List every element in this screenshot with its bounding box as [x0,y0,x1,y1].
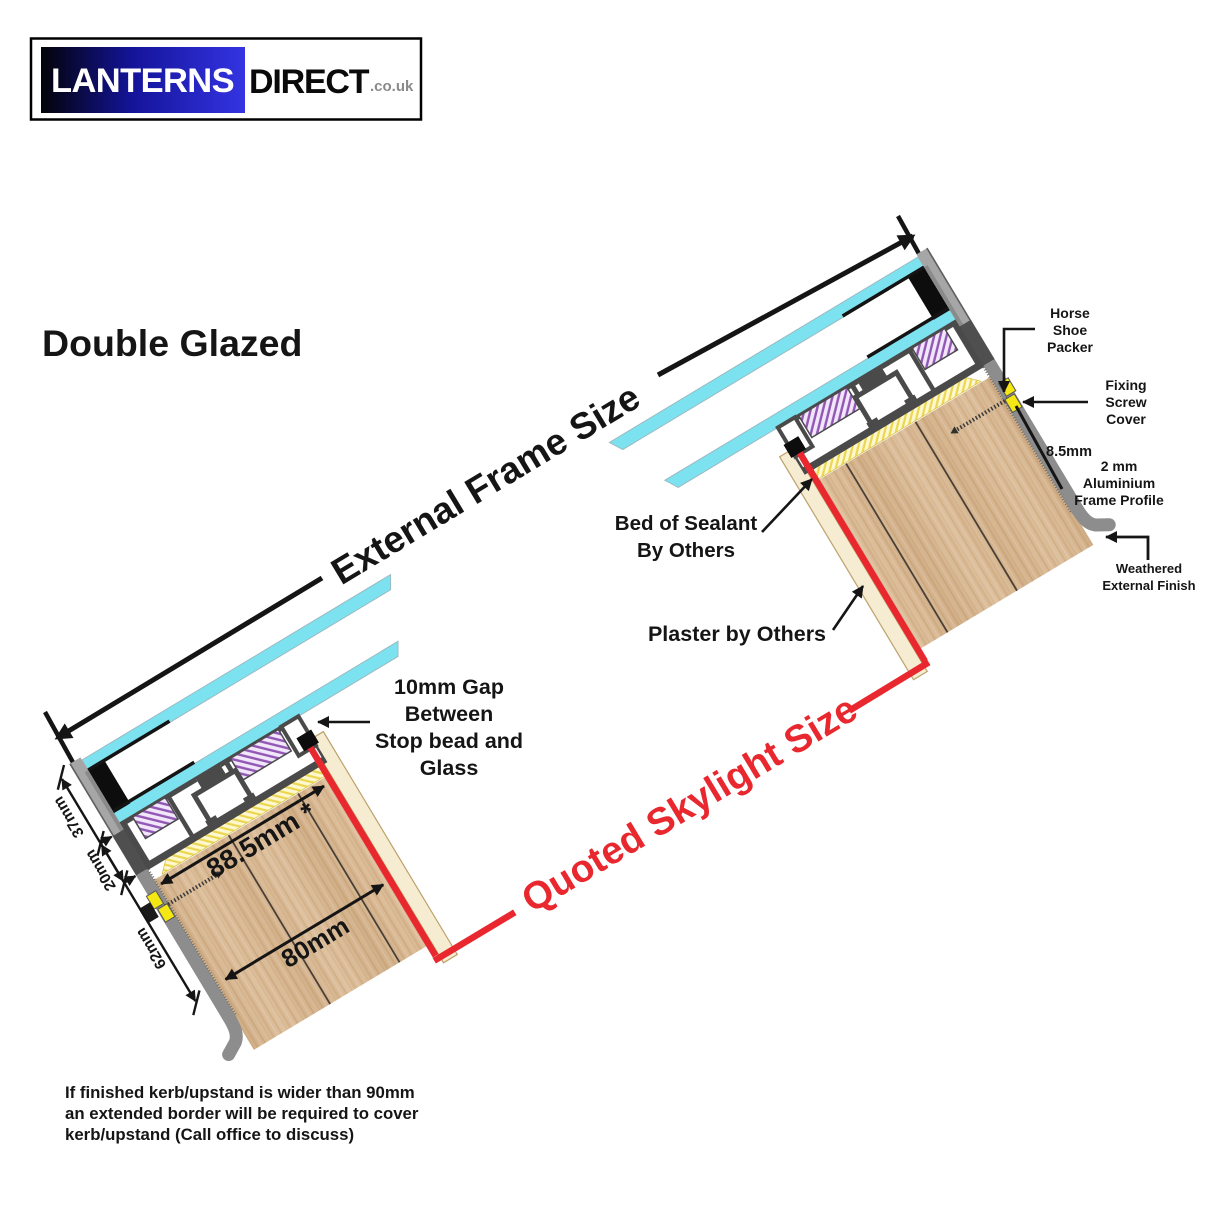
svg-text:Frame Profile: Frame Profile [1074,492,1164,508]
svg-text:Weathered: Weathered [1116,561,1182,576]
svg-text:kerb/upstand (Call office to d: kerb/upstand (Call office to discuss) [65,1125,354,1144]
svg-text:Packer: Packer [1047,339,1093,355]
svg-text:If finished kerb/upstand is wi: If finished kerb/upstand is wider than 9… [65,1083,415,1102]
svg-text:Stop bead and: Stop bead and [375,729,523,753]
svg-text:Shoe: Shoe [1053,322,1087,338]
svg-text:Plaster by Others: Plaster by Others [648,622,826,646]
svg-text:LANTERNS: LANTERNS [51,62,234,100]
svg-text:DIRECT: DIRECT [249,63,370,101]
svg-text:8.5mm: 8.5mm [1046,444,1092,460]
svg-text:Aluminium: Aluminium [1083,475,1155,491]
svg-text:Horse: Horse [1050,305,1090,321]
svg-text:10mm Gap: 10mm Gap [394,675,504,699]
svg-text:Bed of Sealant: Bed of Sealant [615,512,758,535]
svg-text:Fixing: Fixing [1105,377,1146,393]
svg-text:By Others: By Others [637,539,735,562]
svg-text:Between: Between [405,702,493,726]
svg-text:Cover: Cover [1106,411,1146,427]
svg-text:an extended border will be req: an extended border will be required to c… [65,1104,419,1123]
svg-text:Glass: Glass [420,756,479,780]
svg-text:Screw: Screw [1105,394,1146,410]
svg-text:Double Glazed: Double Glazed [42,322,302,364]
svg-text:2 mm: 2 mm [1101,458,1138,474]
svg-text:.co.uk: .co.uk [370,78,414,95]
svg-text:External Finish: External Finish [1102,578,1195,593]
